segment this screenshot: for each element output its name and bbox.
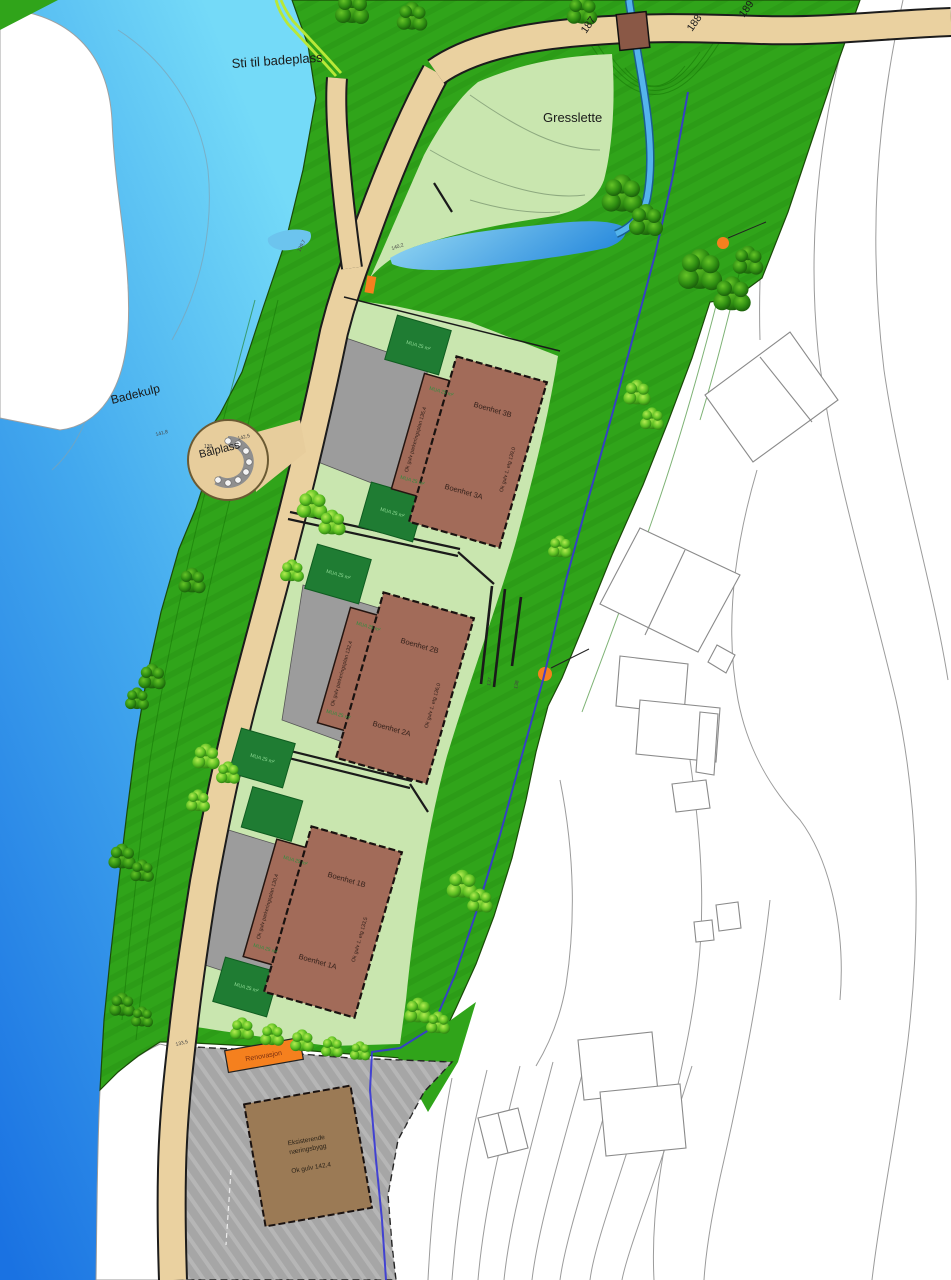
site-plan-canvas: Sti til badeplass Gresslette 187 188 189…	[0, 0, 951, 1280]
site-plan-map: Sti til badeplass Gresslette 187 188 189…	[0, 0, 951, 1280]
existing-building	[244, 1086, 372, 1227]
neighbour-building-7	[672, 780, 710, 812]
neighbour-building-9	[694, 920, 714, 942]
neighbour-building-8	[716, 902, 741, 931]
gresslette-label: Gresslette	[543, 110, 602, 125]
survey-point-1	[717, 237, 729, 249]
bridge	[616, 12, 650, 51]
neighbour-building-6	[696, 712, 718, 775]
balplass-inner-elevation-label: 139	[204, 444, 213, 450]
neighbour-building-11	[600, 1084, 686, 1156]
